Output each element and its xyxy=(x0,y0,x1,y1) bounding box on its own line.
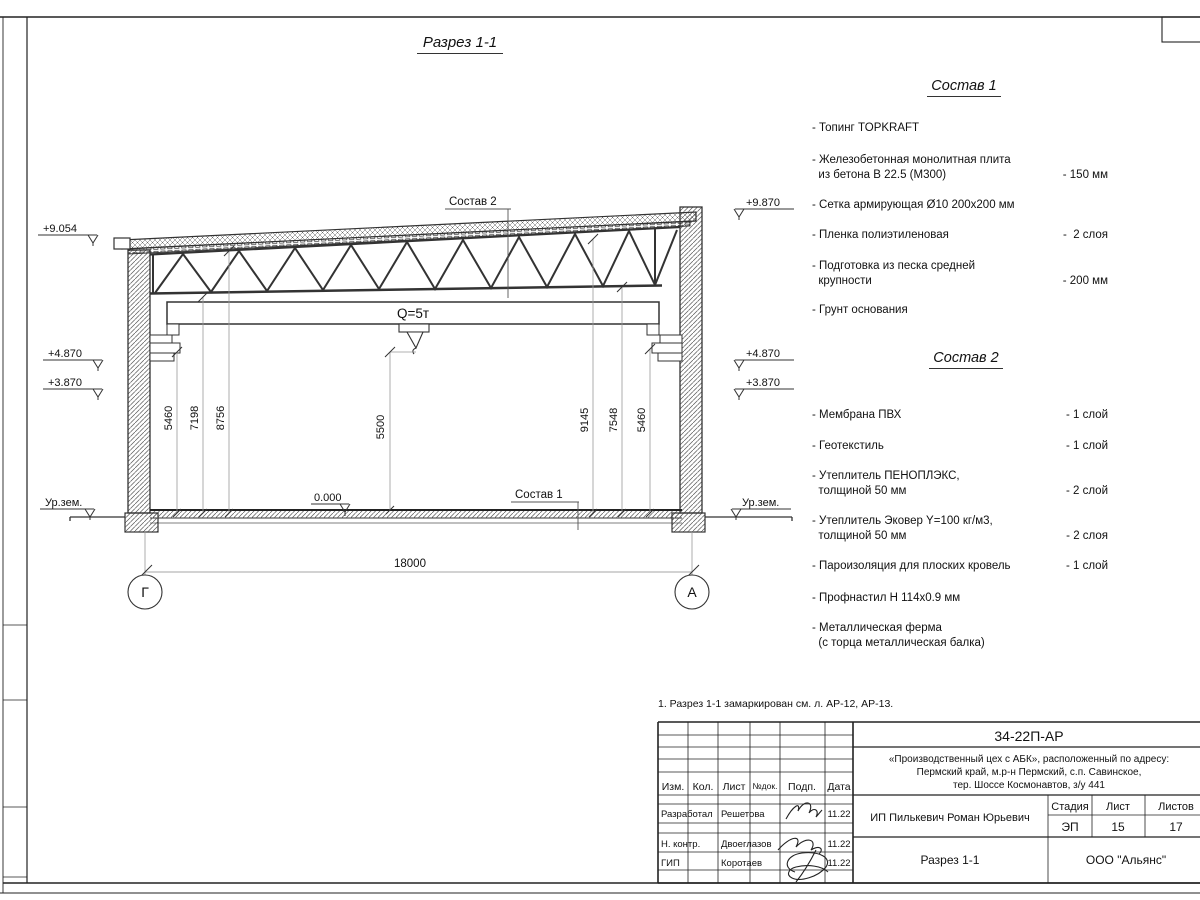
elev-left-low: +3.870 xyxy=(43,377,103,400)
material-row: - Геотекстиль- 1 слой xyxy=(812,439,1108,454)
axis-right-label: А xyxy=(687,584,697,600)
material-row: - Подготовка из песка средней крупности-… xyxy=(812,259,1108,289)
dim-label: 7548 xyxy=(608,408,620,432)
material-row: - Пленка полиэтиленовая- 2 слоя xyxy=(812,228,1108,243)
svg-text:Состав 2: Состав 2 xyxy=(449,196,497,208)
roof-assembly xyxy=(114,212,696,254)
svg-text:+4.870: +4.870 xyxy=(746,348,780,360)
sostav1-heading: Состав 1 xyxy=(899,78,1029,94)
section-drawing: Q=5т 18 xyxy=(38,196,794,609)
row-name: Двоеглазов xyxy=(721,839,772,850)
composition-leaders: Состав 2 Состав 1 xyxy=(445,196,579,530)
dim-span-label: 18000 xyxy=(394,558,426,570)
material-row: - Утеплитель ПЕНОПЛЭКС, толщиной 50 мм- … xyxy=(812,469,1108,499)
col-podp: Подп. xyxy=(788,781,816,793)
title-block: 34-22П-АР «Производственный цех с АБК», … xyxy=(658,722,1200,883)
row-name: Решетова xyxy=(721,809,765,820)
sheets-label: Листов xyxy=(1158,801,1194,813)
dim-label: 5500 xyxy=(375,415,387,439)
page-title: Разрез 1-1 xyxy=(385,34,535,51)
row-role: Н. контр. xyxy=(661,839,700,850)
col-kol: Кол. xyxy=(693,781,714,793)
sheets-value: 17 xyxy=(1169,820,1183,834)
company-name: ООО "Альянс" xyxy=(1086,853,1166,867)
sostav2-heading: Состав 2 xyxy=(901,350,1031,366)
axis-left-label: Г xyxy=(141,584,149,600)
sheet-title: Разрез 1-1 xyxy=(921,853,980,867)
svg-text:+4.870: +4.870 xyxy=(48,348,82,360)
elev-right-mid: +4.870 xyxy=(734,348,794,371)
elev-left-mid: +4.870 xyxy=(43,348,103,371)
row-role: Разработал xyxy=(661,809,713,820)
roof-edge-cap xyxy=(114,238,130,249)
stage-label: Стадия xyxy=(1051,801,1089,813)
crane-hook xyxy=(407,332,423,348)
dim-label: 5460 xyxy=(636,408,648,432)
project-line2: Пермский край, м.р-н Пермский, с.п. Сави… xyxy=(917,767,1142,778)
grid-axes: 18000 Г А xyxy=(128,531,709,609)
col-izm: Изм. xyxy=(662,781,685,793)
svg-text:Ур.зем.: Ур.зем. xyxy=(45,497,82,509)
row-date: 11.22 xyxy=(827,809,850,820)
svg-text:Ур.зем.: Ур.зем. xyxy=(742,497,779,509)
material-row: - Железобетонная монолитная плита из бет… xyxy=(812,153,1108,183)
elev-right-top: +9.870 xyxy=(734,197,794,220)
material-row: - Сетка армирующая Ø10 200х200 мм xyxy=(812,198,1108,213)
format-box xyxy=(1162,17,1200,42)
row-role: ГИП xyxy=(661,858,680,869)
wall-left xyxy=(128,250,150,513)
col-dok: №док. xyxy=(753,781,778,791)
material-row: - Утеплитель Эковер Y=100 кг/м3, толщино… xyxy=(812,514,1108,544)
col-list: Лист xyxy=(723,781,746,793)
row-date: 11.22 xyxy=(827,839,850,850)
svg-text:0.000: 0.000 xyxy=(314,492,342,504)
row-name: Коротаев xyxy=(721,858,762,869)
doc-number: 34-22П-АР xyxy=(994,728,1063,744)
material-row: - Топинг TOPKRAFT xyxy=(812,121,1108,136)
material-row: - Мембрана ПВХ- 1 слой xyxy=(812,408,1108,423)
elev-right-low: +3.870 xyxy=(734,377,794,400)
drawing-sheet: Q=5т 18 xyxy=(0,0,1200,900)
material-row: - Профнастил Н 114х0.9 мм xyxy=(812,591,1108,606)
project-line3: тер. Шоссе Космонавтов, з/у 441 xyxy=(953,780,1105,791)
crane-beam: Q=5т xyxy=(167,302,659,354)
svg-text:+9.054: +9.054 xyxy=(43,223,77,235)
wall-right xyxy=(680,207,702,513)
dim-label: 7198 xyxy=(189,406,201,430)
stage-value: ЭП xyxy=(1061,820,1078,834)
material-row: - Металлическая ферма (с торца металличе… xyxy=(812,621,1108,651)
crane-capacity-label: Q=5т xyxy=(397,306,429,321)
svg-text:+9.870: +9.870 xyxy=(746,197,780,209)
dim-label: 9145 xyxy=(579,408,591,432)
elev-left-top: +9.054 xyxy=(38,223,98,246)
row-date: 11.22 xyxy=(827,858,850,869)
client-name: ИП Пилькевич Роман Юрьевич xyxy=(870,812,1029,824)
dim-label: 5460 xyxy=(163,406,175,430)
vertical-dims: 5460 7198 8756 5500 9145 7548 5460 xyxy=(163,234,655,517)
project-line1: «Производственный цех с АБК», расположен… xyxy=(889,754,1169,765)
sheet-label: Лист xyxy=(1106,801,1130,813)
material-row: - Грунт основания xyxy=(812,303,1108,318)
svg-text:+3.870: +3.870 xyxy=(48,377,82,389)
sheet-value: 15 xyxy=(1111,820,1125,834)
dim-label: 8756 xyxy=(215,406,227,430)
svg-text:Состав 1: Состав 1 xyxy=(515,489,563,501)
svg-text:+3.870: +3.870 xyxy=(746,377,780,389)
sheet-note: 1. Разрез 1-1 замаркирован см. л. АР-12,… xyxy=(658,698,893,710)
material-row: - Пароизоляция для плоских кровель- 1 сл… xyxy=(812,559,1108,574)
crane-trolley xyxy=(399,324,429,332)
sostav2-leader: Состав 2 xyxy=(445,196,511,298)
col-data: Дата xyxy=(827,781,850,793)
